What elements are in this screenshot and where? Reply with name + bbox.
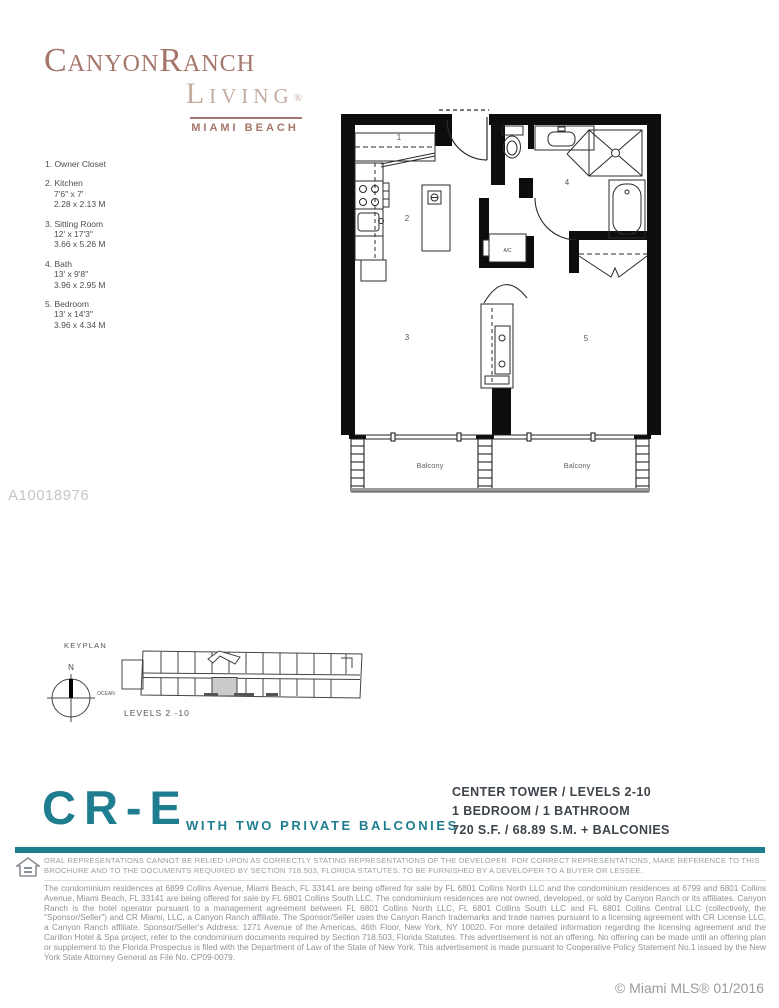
mls-copyright: © Miami MLS® 01/2016 — [0, 980, 764, 996]
shower-icon — [567, 130, 642, 176]
toilet-icon — [502, 126, 523, 158]
legend-item-label: 5. Bedroom — [45, 299, 106, 309]
equal-housing-icon — [16, 857, 40, 879]
compass-north-label: N — [68, 663, 74, 672]
room-number-2: 2 — [405, 214, 410, 223]
bathtub-icon — [609, 180, 645, 238]
room-number-1: 1 — [397, 133, 402, 142]
logo-divider — [190, 117, 302, 119]
room-legend: 1. Owner Closet 2. Kitchen 7'6" x 7' 2.2… — [45, 159, 106, 339]
balcony-piers — [351, 439, 649, 491]
legend-item-label: 3. Sitting Room — [45, 219, 106, 229]
legend-item: 3. Sitting Room 12' x 17'3" 3.66 x 5.26 … — [45, 219, 106, 250]
kitchen-fixtures — [355, 163, 450, 281]
logo-brand-name: CanyonRanch — [44, 44, 302, 78]
canyon-ranch-logo: CanyonRanch Living® MIAMI BEACH — [44, 44, 302, 134]
mls-number-watermark: A10018976 — [8, 487, 89, 504]
keyplan-title: KEYPLAN — [64, 641, 107, 650]
legend-item-dim-ft: 13' x 14'3" — [45, 309, 106, 319]
legend-item: 2. Kitchen 7'6" x 7' 2.28 x 2.13 M — [45, 178, 106, 209]
unit-specs: CENTER TOWER / LEVELS 2-10 1 BEDROOM / 1… — [452, 783, 762, 840]
vanity-sink-icon — [535, 126, 594, 150]
accent-bar — [15, 847, 765, 853]
brochure-page: CanyonRanch Living® MIAMI BEACH 1. Owner… — [0, 0, 779, 1008]
unit-tower-line: CENTER TOWER / LEVELS 2-10 — [452, 783, 762, 802]
bedroom-closet — [579, 254, 647, 277]
ac-label: A/C — [503, 248, 512, 254]
keyplan-compass: N OCEAN — [45, 658, 120, 728]
unit-tagline: WITH TWO PRIVATE BALCONIES — [186, 818, 459, 833]
legend-item: 1. Owner Closet — [45, 159, 106, 169]
legend-item: 5. Bedroom 13' x 14'3" 3.96 x 4.34 M — [45, 299, 106, 330]
legend-item-label: 2. Kitchen — [45, 178, 106, 188]
legend-item-dim-ft: 13' x 9'8" — [45, 269, 106, 279]
unit-area-line: 720 S.F. / 68.89 S.M. + BALCONIES — [452, 821, 762, 840]
oral-representations-disclaimer: ORAL REPRESENTATIONS CANNOT BE RELIED UP… — [44, 856, 766, 875]
legend-item-dim-m: 2.28 x 2.13 M — [45, 199, 106, 209]
legend-item: 4. Bath 13' x 9'8" 3.96 x 2.95 M — [45, 259, 106, 290]
compass-ocean-label: OCEAN — [97, 691, 115, 697]
registered-mark: ® — [294, 92, 302, 104]
room-number-5: 5 — [584, 334, 589, 343]
legend-item-label: 1. Owner Closet — [45, 159, 106, 169]
legend-item-dim-m: 3.66 x 5.26 M — [45, 239, 106, 249]
room-number-4: 4 — [565, 178, 570, 187]
balcony-structure — [351, 433, 649, 492]
media-console — [481, 304, 513, 388]
logo-city: MIAMI BEACH — [188, 122, 302, 134]
keyplan-entry-marker — [208, 651, 240, 664]
keyplan-levels-label: LEVELS 2 -10 — [124, 708, 190, 718]
logo-living-line: Living® — [44, 79, 302, 113]
keyplan-building — [116, 648, 366, 706]
unit-code: CR-E — [42, 780, 189, 835]
balcony-left-label: Balcony — [417, 461, 444, 470]
legend-item-dim-ft: 12' x 17'3" — [45, 229, 106, 239]
owner-closet — [355, 133, 435, 167]
legend-item-dim-m: 3.96 x 2.95 M — [45, 280, 106, 290]
legend-item-dim-ft: 7'6" x 7' — [45, 189, 106, 199]
legend-item-dim-m: 3.96 x 4.34 M — [45, 320, 106, 330]
disclaimer-divider — [44, 880, 766, 881]
floor-plan: 1 2 3 4 5 A/C Balcony Balcony — [339, 106, 669, 498]
legend-item-label: 4. Bath — [45, 259, 106, 269]
compass-needle-icon — [69, 679, 73, 698]
logo-living-text: Living — [186, 77, 294, 110]
legal-disclaimer-text: The condominium residences at 6899 Colli… — [44, 884, 766, 962]
room-number-3: 3 — [405, 333, 410, 342]
unit-bed-bath-line: 1 BEDROOM / 1 BATHROOM — [452, 802, 762, 821]
balcony-right-label: Balcony — [564, 461, 591, 470]
